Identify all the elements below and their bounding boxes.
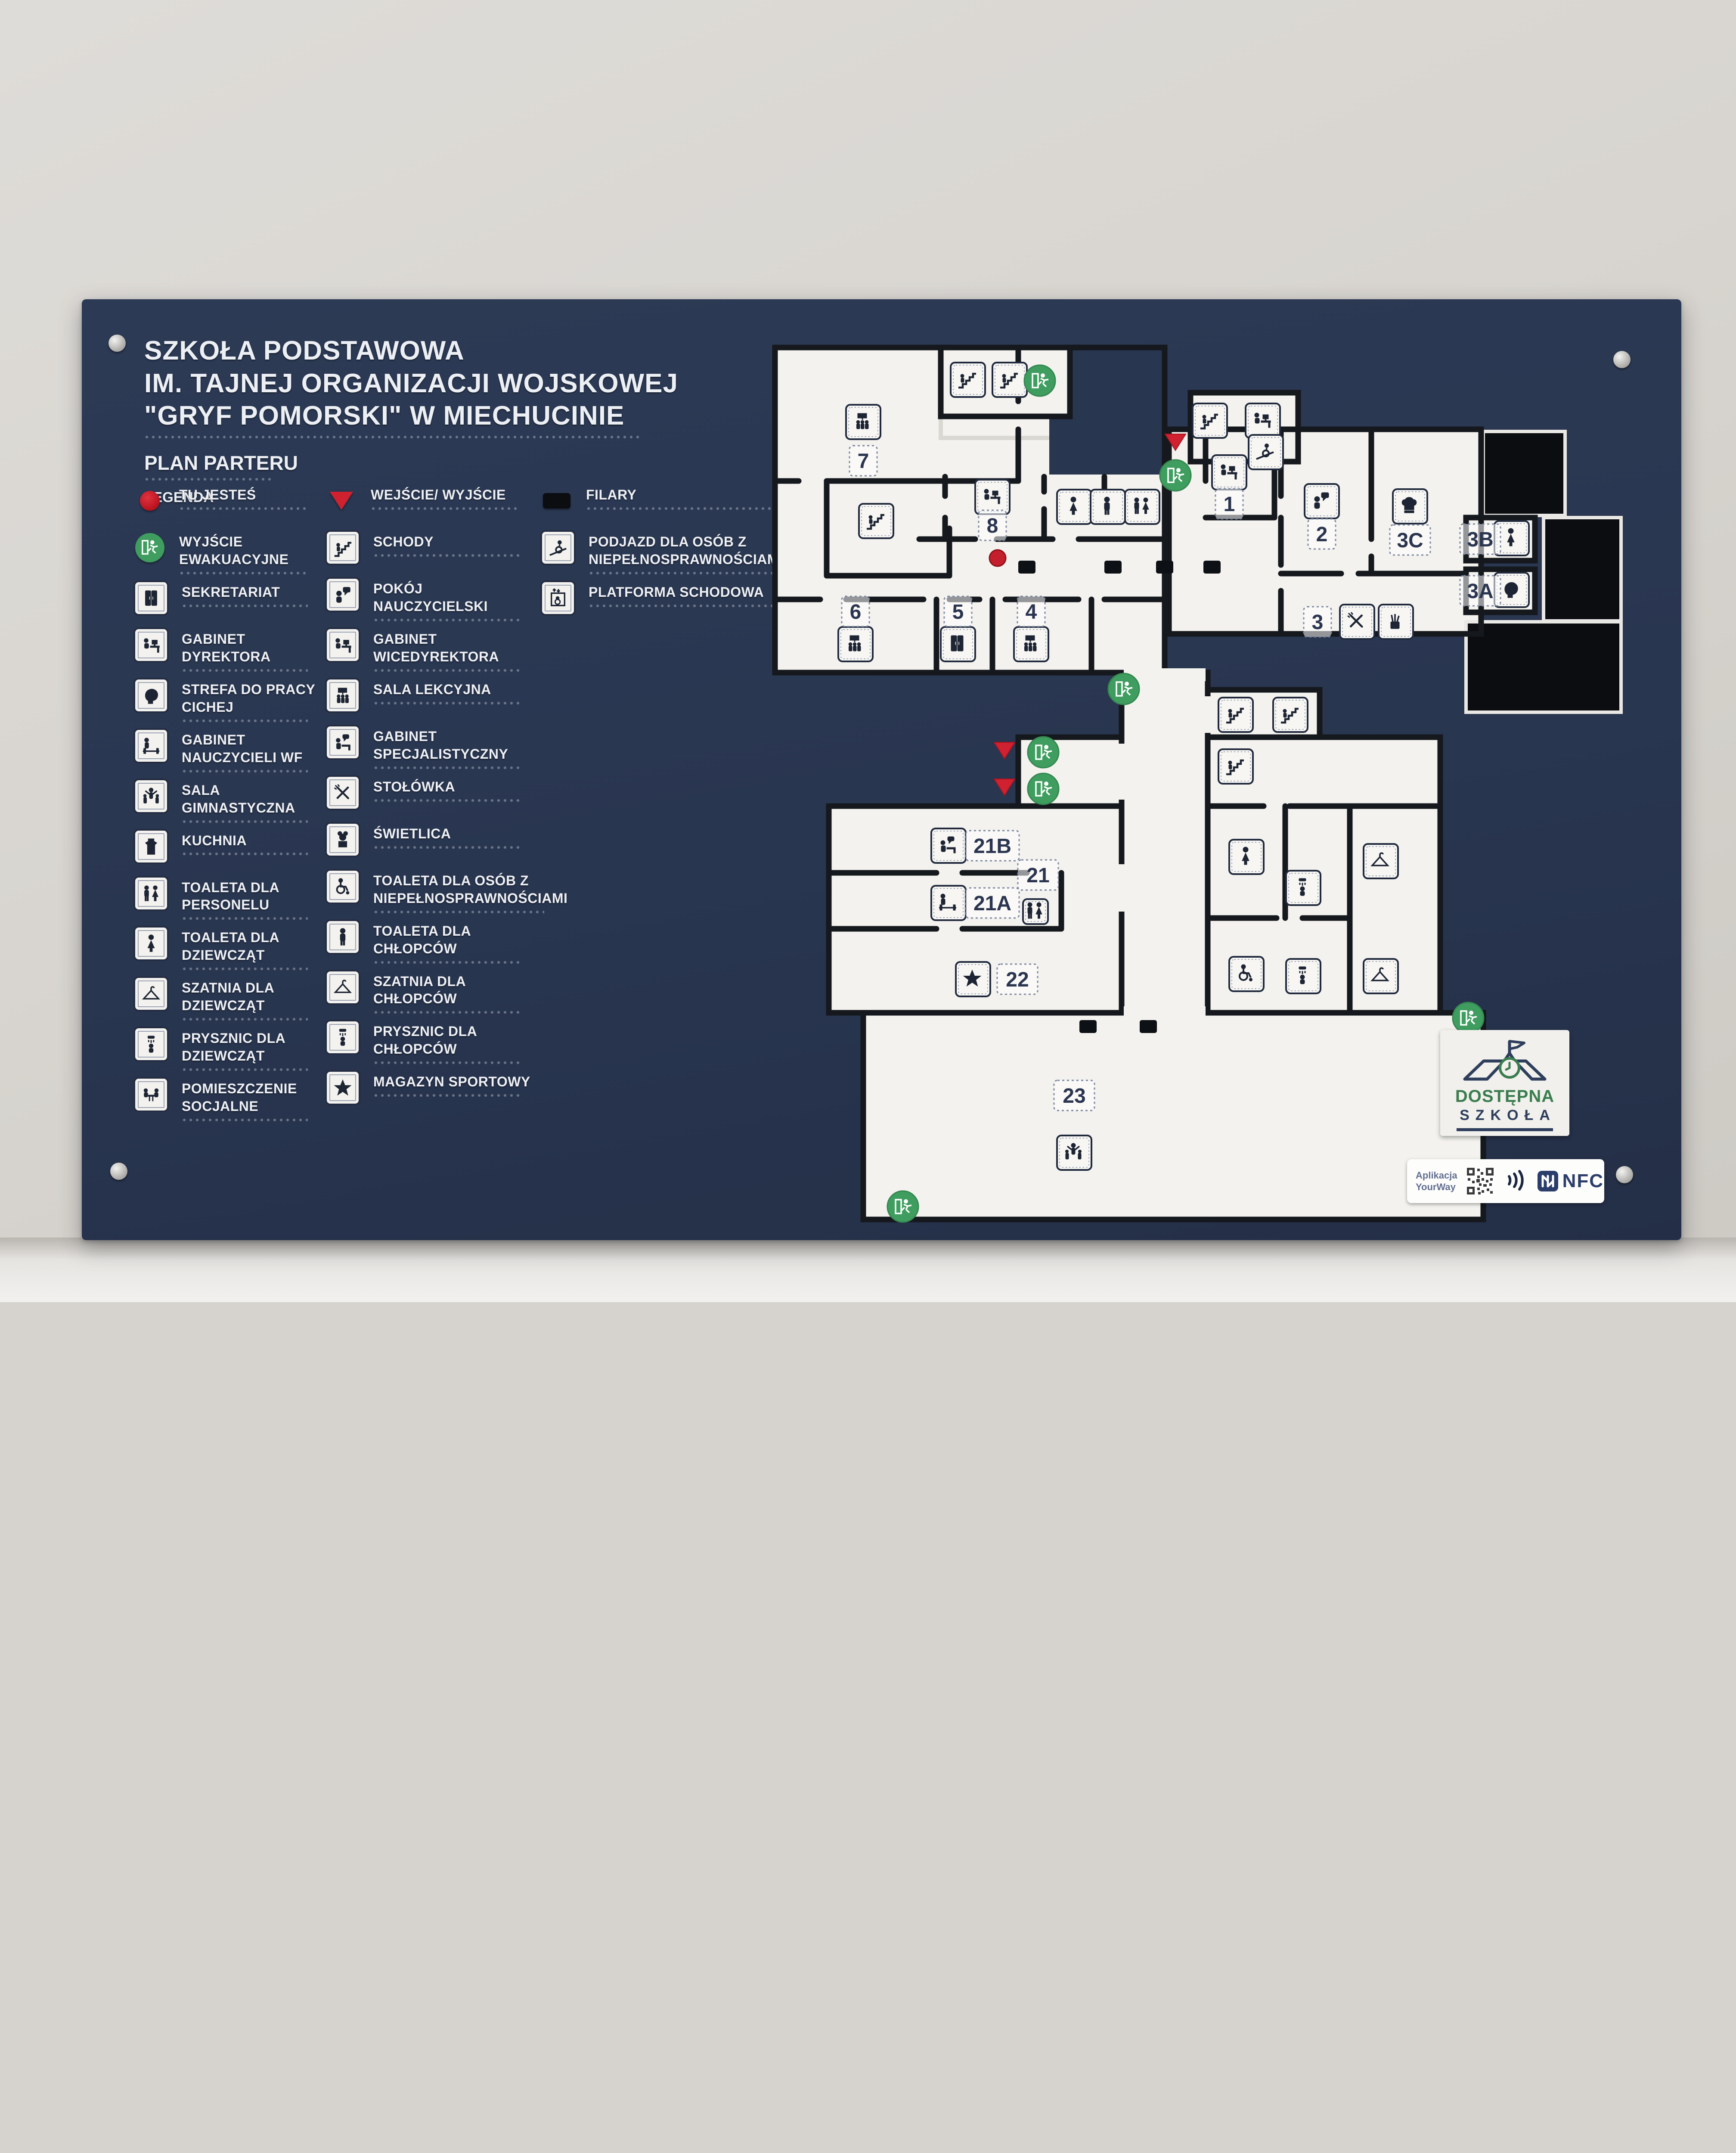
ramp-icon bbox=[1249, 435, 1283, 469]
legend-item: SCHODY bbox=[325, 531, 540, 573]
room-number-22: 22 bbox=[1006, 968, 1029, 991]
legend-label-wrap: KUCHNIA bbox=[182, 830, 325, 857]
braille-row bbox=[373, 668, 520, 673]
legend-item: SZATNIA DLA DZIEWCZĄT bbox=[133, 977, 325, 1022]
emergency-exit-marker bbox=[1024, 365, 1055, 396]
toilet-boys-icon bbox=[1091, 490, 1125, 524]
nfc-info-strip: AplikacjaYourWay bbox=[1407, 1159, 1604, 1203]
room-number-21A: 21A bbox=[973, 892, 1011, 915]
legend-label-wrap: WYJŚCIE EWAKUACYJNE bbox=[179, 531, 325, 576]
class-icon bbox=[838, 627, 873, 661]
braille-row bbox=[182, 603, 308, 609]
room-number-1: 1 bbox=[1224, 493, 1235, 516]
pillar bbox=[1156, 561, 1173, 574]
logo-underline bbox=[1457, 1128, 1553, 1131]
legend-label-wrap: GABINET WICEDYREKTORA bbox=[373, 629, 540, 673]
braille-row bbox=[373, 1010, 520, 1015]
toilet-staff-icon bbox=[1125, 490, 1159, 524]
wheelchair-icon bbox=[325, 870, 360, 903]
contactless-waves-icon bbox=[1503, 1168, 1528, 1195]
legend-item: SZATNIA DLA CHŁOPCÓW bbox=[325, 971, 540, 1016]
legend-label: TOALETA DLA DZIEWCZĄT bbox=[182, 927, 325, 964]
gym-icon bbox=[133, 780, 169, 813]
legend-label: PRYSZNIC DLA DZIEWCZĄT bbox=[182, 1028, 325, 1065]
legend-label-wrap: GABINET DYREKTORA bbox=[182, 629, 325, 673]
legend-label: SEKRETARIAT bbox=[182, 582, 325, 601]
platform-icon bbox=[540, 582, 576, 614]
braille-row bbox=[179, 571, 307, 576]
room-number-3C: 3C bbox=[1397, 529, 1423, 552]
room-number-4: 4 bbox=[1026, 601, 1037, 624]
legend-item: TOALETA DLA OSÓB Z NIEPEŁNOSPRAWNOŚCIAMI bbox=[325, 870, 540, 915]
legend-label-wrap: TOALETA DLA DZIEWCZĄT bbox=[182, 927, 325, 972]
braille-row bbox=[373, 845, 520, 850]
stairs-icon bbox=[1218, 749, 1253, 784]
room-2: 2 bbox=[1308, 519, 1336, 549]
fork-knife-icon bbox=[1340, 605, 1374, 639]
legend-label-wrap: PRYSZNIC DLA DZIEWCZĄT bbox=[182, 1028, 325, 1073]
app-label: AplikacjaYourWay bbox=[1416, 1170, 1457, 1193]
braille-row bbox=[182, 851, 308, 857]
legend-label: GABINET SPECJALISTYCZNY bbox=[373, 726, 540, 763]
legend-label: SCHODY bbox=[373, 531, 540, 551]
shower-icon bbox=[1286, 959, 1321, 993]
braille-row bbox=[182, 1117, 308, 1123]
braille-row bbox=[144, 477, 273, 482]
logo-line2: SZKOŁA bbox=[1454, 1107, 1556, 1124]
shower-icon bbox=[325, 1021, 360, 1054]
specialist-icon bbox=[931, 828, 966, 863]
star-icon bbox=[325, 1071, 360, 1104]
legend-label: WYJŚCIE EWAKUACYJNE bbox=[179, 531, 325, 568]
legend-item: SEKRETARIAT bbox=[133, 582, 325, 623]
window-sill bbox=[0, 1238, 1736, 1302]
school-name-line3: "GRYF POMORSKI" W MIECHUCINIE bbox=[144, 400, 678, 432]
star-icon bbox=[956, 962, 990, 996]
legend-label: SZATNIA DLA DZIEWCZĄT bbox=[182, 977, 325, 1014]
room-1: 1 bbox=[1215, 489, 1243, 519]
legend-label: SALA GIMNASTYCZNA bbox=[182, 780, 325, 817]
legend-label: POKÓJ NAUCZYCIELSKI bbox=[373, 578, 540, 615]
qr-code bbox=[1466, 1167, 1494, 1195]
legend-label: WEJŚCIE/ WYJŚCIE bbox=[371, 484, 540, 504]
room-number-23: 23 bbox=[1063, 1085, 1085, 1108]
pillar bbox=[1018, 561, 1035, 574]
gym-icon bbox=[1057, 1135, 1091, 1170]
lockers-icon bbox=[941, 627, 975, 661]
legend-label: ŚWIETLICA bbox=[373, 823, 540, 843]
room-5: 5 bbox=[944, 596, 972, 627]
head-icon bbox=[133, 679, 169, 712]
room-3A: 3A bbox=[1460, 576, 1500, 606]
toilet-girls-icon bbox=[1229, 840, 1264, 874]
school-house-icon bbox=[1459, 1036, 1551, 1084]
screw-bottom-left bbox=[110, 1163, 127, 1180]
legend-label-wrap: WEJŚCIE/ WYJŚCIE bbox=[371, 484, 540, 512]
screw-top-left bbox=[108, 335, 126, 352]
legend-item: PRYSZNIC DLA CHŁOPCÓW bbox=[325, 1021, 540, 1066]
legend-label: MAGAZYN SPORTOWY bbox=[373, 1071, 540, 1091]
toilet-boys-icon bbox=[325, 921, 360, 953]
legend-item: STREFA DO PRACY CICHEJ bbox=[133, 679, 325, 724]
speech-icon bbox=[1305, 484, 1339, 518]
braille-row bbox=[182, 916, 308, 921]
desk-person-icon bbox=[975, 480, 1010, 514]
legend-item: POMIESZCZENIE SOCJALNE bbox=[133, 1078, 325, 1123]
emergency-exit-marker bbox=[1108, 673, 1139, 704]
pillar bbox=[1079, 1020, 1097, 1033]
room-21B: 21B bbox=[966, 831, 1019, 861]
dostepna-szkola-logo: DOSTĘPNA SZKOŁA bbox=[1440, 1030, 1569, 1136]
room-number-6: 6 bbox=[850, 601, 862, 624]
desk-person-icon bbox=[1212, 455, 1246, 490]
legend-label-wrap: STREFA DO PRACY CICHEJ bbox=[182, 679, 325, 724]
legend-item: GABINET DYREKTORA bbox=[133, 629, 325, 673]
legend-label: PRYSZNIC DLA CHŁOPCÓW bbox=[373, 1021, 540, 1058]
room-22: 22 bbox=[997, 964, 1038, 994]
room-7: 7 bbox=[849, 446, 877, 476]
toilet-staff-icon bbox=[1023, 899, 1048, 924]
room-number-21: 21 bbox=[1026, 864, 1049, 887]
legend-label: GABINET DYREKTORA bbox=[182, 629, 325, 666]
toilet-girls-icon bbox=[133, 927, 169, 960]
legend-label-wrap: TOALETA DLA CHŁOPCÓW bbox=[373, 921, 540, 965]
legend-label-wrap: GABINET NAUCZYCIELI WF bbox=[182, 729, 325, 774]
nfc-text: NFC bbox=[1562, 1170, 1604, 1192]
legend-label: SZATNIA DLA CHŁOPCÓW bbox=[373, 971, 540, 1008]
legend-label: SALA LEKCYJNA bbox=[373, 679, 540, 698]
shower-icon bbox=[1286, 871, 1321, 905]
legend-label: KUCHNIA bbox=[182, 830, 325, 850]
legend-label-wrap: MAGAZYN SPORTOWY bbox=[373, 1071, 540, 1098]
legend-label-wrap: SZATNIA DLA DZIEWCZĄT bbox=[182, 977, 325, 1022]
pencils-icon bbox=[1379, 605, 1413, 639]
legend-item: GABINET SPECJALISTYCZNY bbox=[325, 726, 540, 771]
room-3C: 3C bbox=[1390, 525, 1430, 555]
legend-label-wrap: SCHODY bbox=[373, 531, 540, 558]
braille-row bbox=[373, 798, 520, 803]
room-number-8: 8 bbox=[987, 515, 998, 537]
entrance-marker bbox=[994, 742, 1015, 759]
braille-row bbox=[179, 506, 307, 512]
legend-label: TU JESTEŚ bbox=[179, 484, 325, 504]
braille-row bbox=[373, 701, 520, 706]
stairs-icon bbox=[1218, 698, 1253, 732]
legend-label-wrap: SALA LEKCYJNA bbox=[373, 679, 540, 706]
legend-label: POMIESZCZENIE SOCJALNE bbox=[182, 1078, 325, 1115]
legend-label: TOALETA DLA CHŁOPCÓW bbox=[373, 921, 540, 958]
room-number-21B: 21B bbox=[973, 835, 1011, 858]
hanger-icon bbox=[325, 971, 360, 1004]
legend-label-wrap: STOŁÓWKA bbox=[373, 776, 540, 803]
legend-item: TOALETA DLA PERSONELU bbox=[133, 877, 325, 922]
room-number-5: 5 bbox=[952, 601, 964, 624]
room-4: 4 bbox=[1017, 596, 1045, 627]
entrance-triangle-icon bbox=[325, 484, 358, 517]
pillar bbox=[1203, 561, 1221, 574]
pillar-icon bbox=[540, 484, 573, 517]
braille-row bbox=[373, 1093, 520, 1098]
stairs-icon bbox=[992, 363, 1027, 397]
emergency-exit-marker bbox=[1028, 737, 1059, 768]
hanger-icon bbox=[1364, 959, 1398, 993]
braille-row bbox=[182, 819, 308, 825]
room-number-2: 2 bbox=[1316, 523, 1328, 546]
photo-background: SZKOŁA PODSTAWOWA IM. TAJNEJ ORGANIZACJI… bbox=[0, 0, 1736, 1302]
legend-label-wrap: SZATNIA DLA CHŁOPCÓW bbox=[373, 971, 540, 1016]
braille-row bbox=[373, 960, 520, 965]
legend-item: ŚWIETLICA bbox=[325, 823, 540, 865]
legend-item: TOALETA DLA CHŁOPCÓW bbox=[325, 921, 540, 965]
legend-label-wrap: SALA GIMNASTYCZNA bbox=[182, 780, 325, 825]
stairs-icon bbox=[1193, 403, 1227, 438]
legend-item: GABINET WICEDYREKTORA bbox=[325, 629, 540, 673]
deputy-desk-icon bbox=[325, 629, 360, 661]
room-23: 23 bbox=[1054, 1080, 1094, 1111]
legend-label-wrap: TOALETA DLA OSÓB Z NIEPEŁNOSPRAWNOŚCIAMI bbox=[373, 870, 567, 915]
braille-row bbox=[144, 434, 639, 440]
legend-item: POKÓJ NAUCZYCIELSKI bbox=[325, 578, 540, 623]
pillar bbox=[1104, 561, 1122, 574]
legend-label-wrap: SEKRETARIAT bbox=[182, 582, 325, 609]
class-icon bbox=[846, 405, 880, 439]
legend-item: GABINET NAUCZYCIELI WF bbox=[133, 729, 325, 774]
legend-label-wrap: ŚWIETLICA bbox=[373, 823, 540, 850]
puppet-icon bbox=[325, 823, 360, 856]
legend-item: PRYSZNIC DLA DZIEWCZĄT bbox=[133, 1028, 325, 1073]
legend-label-wrap: POMIESZCZENIE SOCJALNE bbox=[182, 1078, 325, 1123]
legend-item: SALA LEKCYJNA bbox=[325, 679, 540, 720]
braille-row bbox=[182, 966, 308, 972]
pe-teacher-icon bbox=[931, 886, 966, 920]
emergency-exit-icon bbox=[133, 531, 166, 564]
legend-label: GABINET NAUCZYCIELI WF bbox=[182, 729, 325, 766]
braille-row bbox=[182, 769, 308, 774]
braille-row bbox=[182, 668, 308, 673]
braille-row bbox=[373, 617, 520, 623]
legend-item: TU JESTEŚ bbox=[133, 484, 325, 526]
room-number-3: 3 bbox=[1312, 611, 1324, 634]
emergency-exit-marker bbox=[1160, 460, 1191, 491]
shower-icon bbox=[133, 1028, 169, 1061]
hanger-icon bbox=[133, 977, 169, 1010]
legend-item: SALA GIMNASTYCZNA bbox=[133, 780, 325, 825]
room-number-3B: 3B bbox=[1467, 528, 1493, 551]
you-are-here-icon bbox=[133, 484, 166, 517]
legend-item: WYJŚCIE EWAKUACYJNE bbox=[133, 531, 325, 576]
braille-row bbox=[182, 1067, 308, 1073]
braille-row bbox=[371, 506, 520, 512]
toilet-girls-icon bbox=[1057, 490, 1091, 524]
emergency-exit-marker bbox=[887, 1191, 918, 1222]
emergency-exit-marker bbox=[1453, 1002, 1484, 1033]
apron-icon bbox=[133, 830, 169, 863]
legend-column-2: WEJŚCIE/ WYJŚCIESCHODYPOKÓJ NAUCZYCIELSK… bbox=[325, 484, 540, 1113]
entrance-marker bbox=[994, 779, 1015, 795]
legend-item: TOALETA DLA DZIEWCZĄT bbox=[133, 927, 325, 972]
room-3: 3 bbox=[1304, 607, 1331, 637]
emergency-exit-marker bbox=[1028, 773, 1059, 804]
nfc-logo: NFC bbox=[1537, 1170, 1604, 1192]
legend-label: TOALETA DLA PERSONELU bbox=[182, 877, 325, 914]
toilet-staff-icon bbox=[133, 877, 169, 910]
braille-row bbox=[182, 1017, 308, 1022]
lockers-icon bbox=[133, 582, 169, 614]
stairs-icon bbox=[325, 531, 360, 564]
stairs-icon bbox=[951, 363, 985, 397]
deputy-desk-icon bbox=[1246, 403, 1280, 438]
class-icon bbox=[325, 679, 360, 712]
legend-label-wrap: POKÓJ NAUCZYCIELSKI bbox=[373, 578, 540, 623]
legend-item: MAGAZYN SPORTOWY bbox=[325, 1071, 540, 1113]
braille-row bbox=[373, 1060, 520, 1066]
room-8: 8 bbox=[979, 510, 1006, 540]
legend-label: STREFA DO PRACY CICHEJ bbox=[182, 679, 325, 716]
room-3B: 3B bbox=[1460, 524, 1500, 554]
braille-row bbox=[373, 553, 520, 558]
ramp-icon bbox=[540, 531, 576, 564]
desk-person-icon bbox=[133, 629, 169, 661]
legend-label-wrap: PRYSZNIC DLA CHŁOPCÓW bbox=[373, 1021, 540, 1066]
legend-item: KUCHNIA bbox=[133, 830, 325, 872]
legend-label: TOALETA DLA OSÓB Z NIEPEŁNOSPRAWNOŚCIAMI bbox=[373, 870, 567, 907]
legend-label-wrap: TOALETA DLA PERSONELU bbox=[182, 877, 325, 922]
pillar bbox=[1140, 1020, 1157, 1033]
legend-label-wrap: GABINET SPECJALISTYCZNY bbox=[373, 726, 540, 771]
chef-icon bbox=[1393, 489, 1427, 524]
logo-line1: DOSTĘPNA bbox=[1455, 1087, 1554, 1106]
legend-column-1: TU JESTEŚWYJŚCIE EWAKUACYJNESEKRETARIATG… bbox=[133, 484, 325, 1123]
you-are-here-marker bbox=[989, 550, 1006, 566]
braille-row bbox=[373, 909, 544, 915]
room-21: 21 bbox=[1018, 860, 1058, 890]
fork-knife-icon bbox=[325, 776, 360, 809]
room-number-7: 7 bbox=[858, 450, 869, 473]
legend: TU JESTEŚWYJŚCIE EWAKUACYJNESEKRETARIATG… bbox=[133, 484, 799, 1123]
legend-label: STOŁÓWKA bbox=[373, 776, 540, 796]
stairs-icon bbox=[859, 504, 893, 538]
page-title: PLAN PARTERU bbox=[144, 451, 678, 475]
legend-item: WEJŚCIE/ WYJŚCIE bbox=[325, 484, 540, 526]
wheelchair-icon bbox=[1229, 957, 1264, 991]
social-icon bbox=[133, 1078, 169, 1111]
school-name-line2: IM. TAJNEJ ORGANIZACJI WOJSKOWEJ bbox=[144, 367, 678, 400]
speech-icon bbox=[325, 578, 360, 611]
room-6: 6 bbox=[842, 596, 869, 627]
room-number-3A: 3A bbox=[1467, 580, 1493, 603]
pe-teacher-icon bbox=[133, 729, 169, 762]
braille-row bbox=[373, 765, 520, 771]
legend-label: GABINET WICEDYREKTORA bbox=[373, 629, 540, 666]
specialist-icon bbox=[325, 726, 360, 759]
class-icon bbox=[1014, 627, 1048, 661]
title-block: SZKOŁA PODSTAWOWA IM. TAJNEJ ORGANIZACJI… bbox=[144, 335, 678, 506]
hanger-icon bbox=[1364, 844, 1398, 878]
legend-label-wrap: TU JESTEŚ bbox=[179, 484, 325, 512]
stairs-icon bbox=[1273, 698, 1308, 732]
braille-row bbox=[182, 718, 308, 724]
room-21A: 21A bbox=[966, 888, 1019, 918]
school-name-line1: SZKOŁA PODSTAWOWA bbox=[144, 335, 678, 367]
legend-item: STOŁÓWKA bbox=[325, 776, 540, 818]
